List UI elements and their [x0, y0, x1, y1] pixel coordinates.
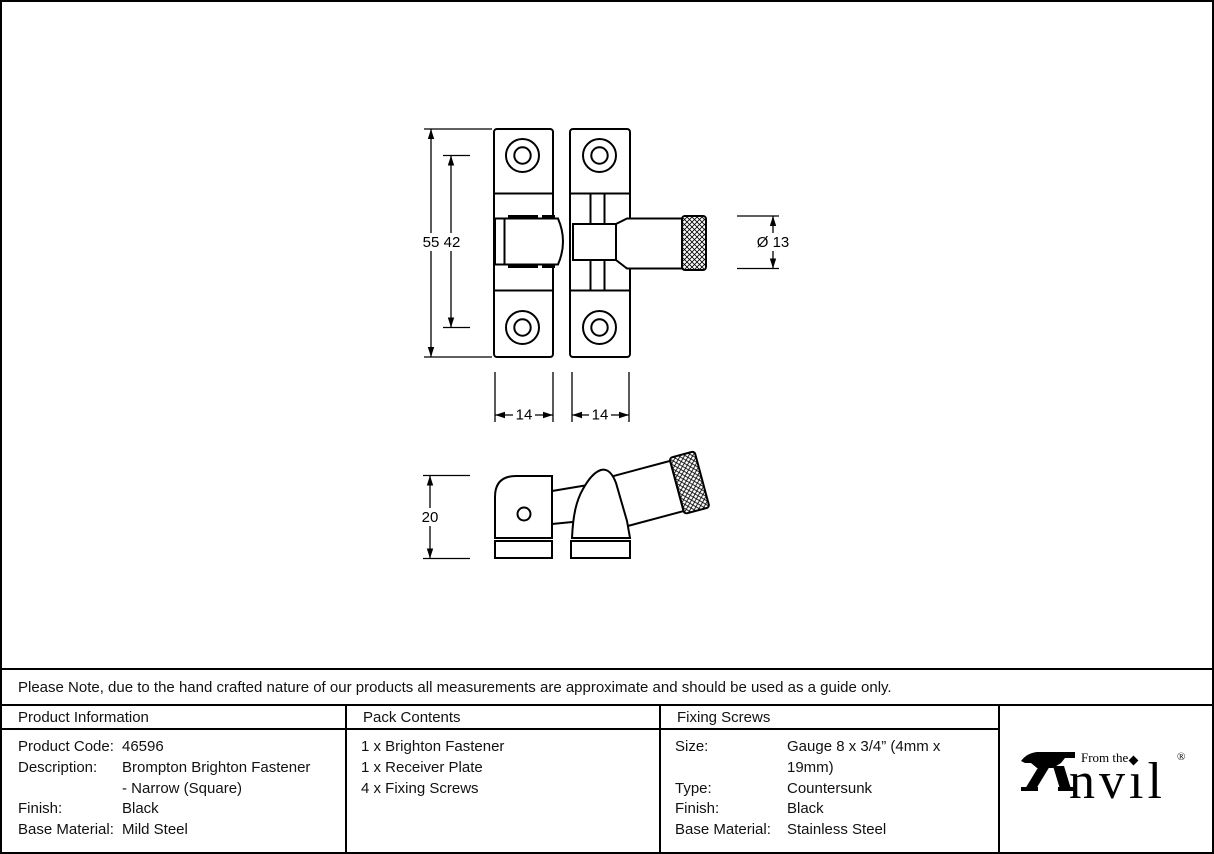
knob-shaft: [616, 219, 682, 269]
registered-mark: ®: [1177, 751, 1185, 763]
pack-item: 1 x Brighton Fastener: [361, 737, 651, 758]
finish-row: Finish: Black: [18, 799, 337, 820]
side-view-drawing: [495, 451, 710, 558]
description-row-2: - Narrow (Square): [18, 779, 337, 800]
base-material-value: Mild Steel: [122, 820, 188, 841]
measurement-note: Please Note, due to the hand crafted nat…: [18, 679, 892, 696]
dim-left-plate-width: 14: [516, 407, 533, 424]
dim-knob-diameter: Ø 13: [757, 234, 790, 251]
technical-drawing: 55 42 Ø 13 14 14: [2, 2, 1212, 666]
screw-type-label: Type:: [675, 779, 787, 800]
screw-finish-row: Finish: Black: [675, 799, 990, 820]
base-material-row: Base Material: Mild Steel: [18, 820, 337, 841]
screw-base-material-label: Base Material:: [675, 820, 787, 841]
pack-contents-cell: 1 x Brighton Fastener 1 x Receiver Plate…: [347, 730, 661, 852]
fixing-screws-cell: Size: Gauge 8 x 3/4” (4mm x 19mm) Type: …: [661, 730, 1000, 852]
side-view-dimensions: 20: [418, 476, 470, 559]
screw-type-row: Type: Countersunk: [675, 779, 990, 800]
knurled-knob: [682, 216, 706, 270]
fixing-screws-header: Fixing Screws: [661, 706, 1000, 730]
pack-item: 1 x Receiver Plate: [361, 758, 651, 779]
screw-finish-value: Black: [787, 799, 824, 820]
description-value-line2: - Narrow (Square): [122, 779, 242, 800]
technical-drawing-area: 55 42 Ø 13 14 14: [2, 2, 1212, 670]
pack-item: 4 x Fixing Screws: [361, 779, 651, 800]
side-left-base: [495, 541, 552, 558]
screw-type-value: Countersunk: [787, 779, 872, 800]
product-code-row: Product Code: 46596: [18, 737, 337, 758]
screw-base-material-value: Stainless Steel: [787, 820, 886, 841]
pack-contents-header: Pack Contents: [347, 706, 661, 730]
product-information-header: Product Information: [2, 706, 347, 730]
dim-overall-height: 55: [423, 234, 440, 251]
dim-right-plate-width: 14: [592, 407, 609, 424]
description-label: Description:: [18, 758, 122, 779]
description-value-line1: Brompton Brighton Fastener: [122, 758, 310, 779]
title-block-table: Product Information Pack Contents Fixing…: [2, 706, 1212, 852]
product-code-label: Product Code:: [18, 737, 122, 758]
finish-label: Finish:: [18, 799, 122, 820]
side-pivot-hole: [518, 508, 531, 521]
description-row: Description: Brompton Brighton Fastener: [18, 758, 337, 779]
latch-arm: [573, 224, 616, 260]
screw-base-material-row: Base Material: Stainless Steel: [675, 820, 990, 841]
finish-value: Black: [122, 799, 159, 820]
dim-depth: 20: [422, 509, 439, 526]
measurement-note-bar: Please Note, due to the hand crafted nat…: [2, 670, 1212, 706]
screw-size-label: Size:: [675, 737, 787, 779]
screw-size-value: Gauge 8 x 3/4” (4mm x 19mm): [787, 737, 990, 779]
dim-hole-spacing: 42: [444, 234, 461, 251]
screw-size-row: Size: Gauge 8 x 3/4” (4mm x 19mm): [675, 737, 990, 779]
side-mid-base: [571, 541, 630, 558]
from-the-anvil-logo: nvıl From the ®: [1019, 748, 1194, 810]
front-view-drawing: [494, 129, 706, 357]
anvil-a-icon: [1021, 752, 1075, 791]
base-material-label: Base Material:: [18, 820, 122, 841]
screw-finish-label: Finish:: [675, 799, 787, 820]
brand-logo-cell: nvıl From the ®: [1000, 706, 1212, 852]
spec-sheet-page: 55 42 Ø 13 14 14: [0, 0, 1214, 854]
product-code-value: 46596: [122, 737, 164, 758]
brand-prefix-text: From the: [1081, 750, 1129, 765]
product-information-cell: Product Code: 46596 Description: Brompto…: [2, 730, 347, 852]
